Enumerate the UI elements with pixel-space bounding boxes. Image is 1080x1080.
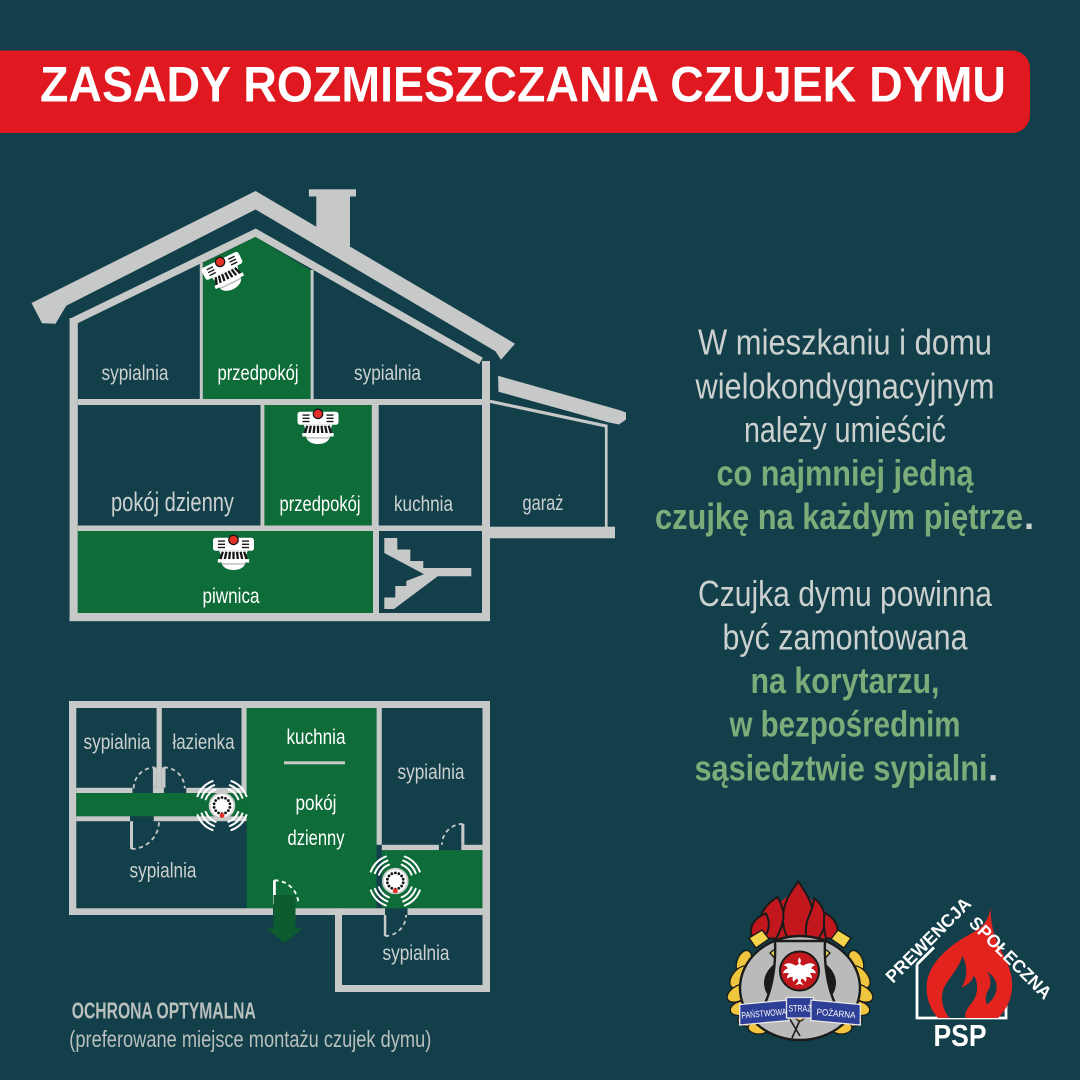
- svg-text:piwnica: piwnica: [203, 584, 260, 608]
- svg-text:w bezpośrednim: w bezpośrednim: [729, 704, 961, 745]
- svg-text:(preferowane miejsce montażu c: (preferowane miejsce montażu czujek dymu…: [69, 1026, 431, 1052]
- svg-text:STRAŻ: STRAŻ: [789, 1004, 812, 1015]
- svg-text:W mieszkaniu i domu: W mieszkaniu i domu: [698, 322, 992, 363]
- svg-text:należy umieścić: należy umieścić: [744, 409, 946, 450]
- svg-text:sypialnia: sypialnia: [130, 859, 197, 883]
- svg-text:przedpokój: przedpokój: [218, 361, 299, 385]
- svg-text:czujkę na każdym piętrze: czujkę na każdym piętrze: [655, 496, 1023, 537]
- svg-text:garaż: garaż: [523, 491, 564, 515]
- svg-text:dzienny: dzienny: [288, 826, 345, 850]
- svg-text:kuchnia: kuchnia: [394, 492, 453, 516]
- svg-text:sypialnia: sypialnia: [102, 361, 169, 385]
- svg-text:sypialnia: sypialnia: [84, 730, 151, 754]
- svg-text:łazienka: łazienka: [173, 730, 235, 754]
- svg-text:.: .: [988, 747, 998, 788]
- svg-text:sypialnia: sypialnia: [383, 941, 450, 965]
- svg-text:kuchnia: kuchnia: [287, 725, 346, 749]
- svg-text:.: .: [1024, 496, 1034, 537]
- svg-text:OCHRONA OPTYMALNA: OCHRONA OPTYMALNA: [72, 998, 256, 1024]
- svg-text:być zamontowana: być zamontowana: [723, 617, 969, 658]
- svg-text:sypialnia: sypialnia: [398, 760, 465, 784]
- svg-text:przedpokój: przedpokój: [280, 492, 361, 516]
- svg-text:ZASADY ROZMIESZCZANIA CZUJEK D: ZASADY ROZMIESZCZANIA CZUJEK DYMU: [40, 57, 1006, 113]
- svg-text:sąsiedztwie sypialni: sąsiedztwie sypialni: [695, 747, 988, 788]
- svg-text:pokój dzienny: pokój dzienny: [111, 487, 235, 517]
- svg-text:na korytarzu,: na korytarzu,: [751, 660, 940, 701]
- svg-text:PSP: PSP: [934, 1018, 987, 1053]
- svg-text:wielokondygnacyjnym: wielokondygnacyjnym: [695, 365, 995, 406]
- svg-text:co najmniej jedną: co najmniej jedną: [717, 453, 975, 494]
- svg-text:Czujka dymu powinna: Czujka dymu powinna: [698, 573, 993, 614]
- svg-text:pokój: pokój: [296, 791, 337, 815]
- svg-text:sypialnia: sypialnia: [354, 361, 421, 385]
